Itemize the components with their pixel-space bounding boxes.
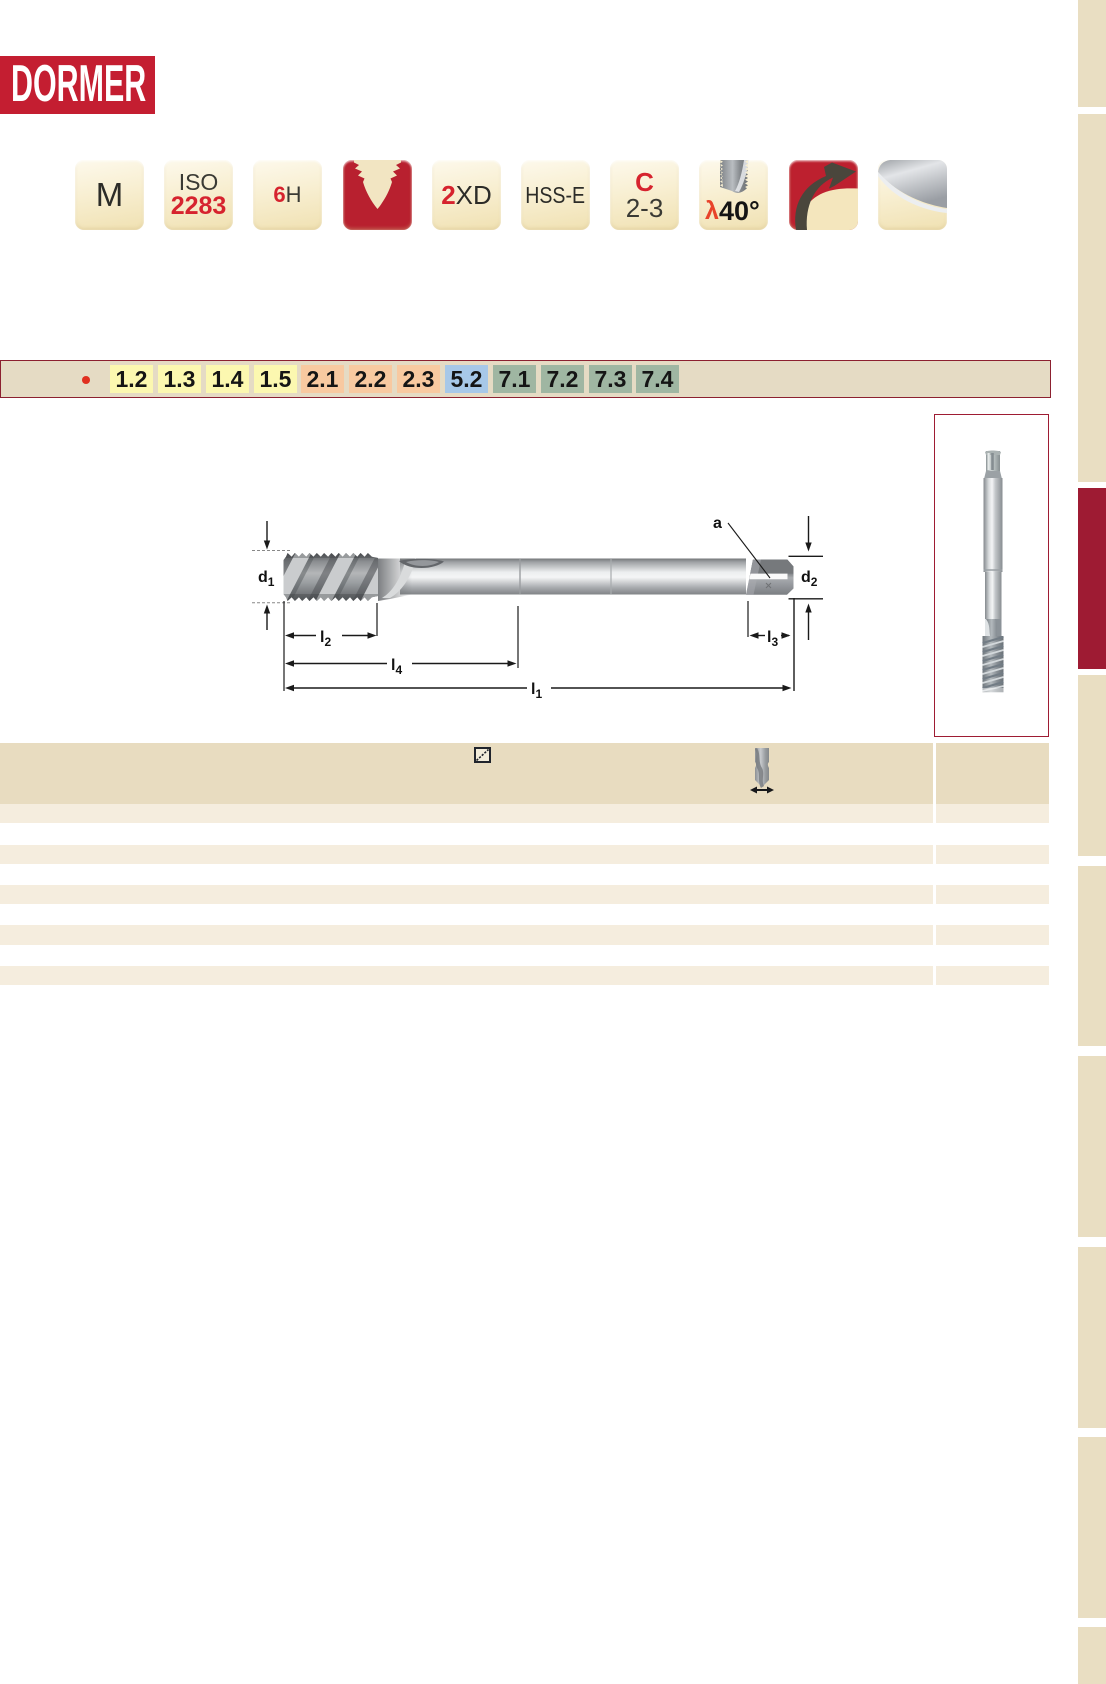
svg-text:a: a: [713, 515, 722, 532]
svg-text:l3: l3: [767, 629, 778, 649]
svg-text:l4: l4: [391, 657, 402, 677]
svg-text:l2: l2: [320, 629, 331, 649]
svg-text:d2: d2: [801, 569, 818, 589]
svg-text:l1: l1: [531, 681, 542, 701]
svg-text:d1: d1: [258, 569, 275, 589]
